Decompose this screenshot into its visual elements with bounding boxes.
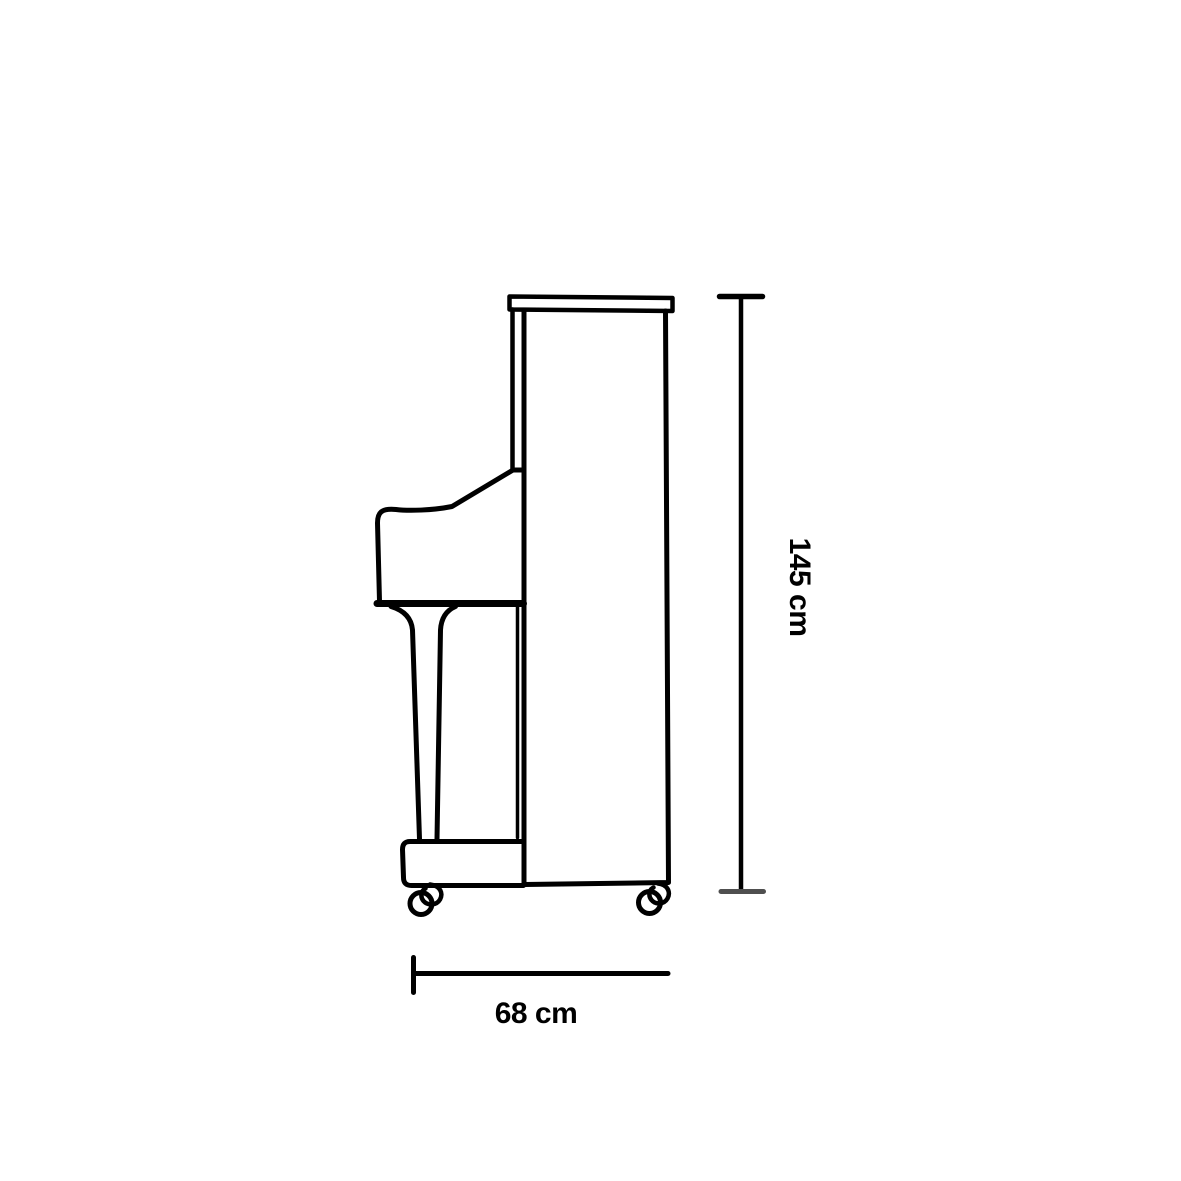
piano-body-back-and-bottom [525,311,669,885]
height-dimension-label: 145 cm [782,538,816,637]
upright-piano-side-illustration [0,0,1181,1181]
piano-leg-left-edge [391,607,420,840]
piano-front-leg [391,607,456,840]
piano-pedal-box [403,842,524,886]
right-caster [639,884,669,914]
piano-drawing [377,297,673,915]
depth-dimension-line [414,958,669,993]
depth-dimension-label: 68 cm [495,997,578,1031]
left-caster [410,885,441,915]
piano-lid [510,297,673,312]
height-dimension-line [720,297,764,892]
piano-leg-right-edge [437,607,456,840]
piano-dimension-diagram: 145 cm 68 cm [0,0,1181,1181]
piano-keybed-outline [378,470,524,601]
